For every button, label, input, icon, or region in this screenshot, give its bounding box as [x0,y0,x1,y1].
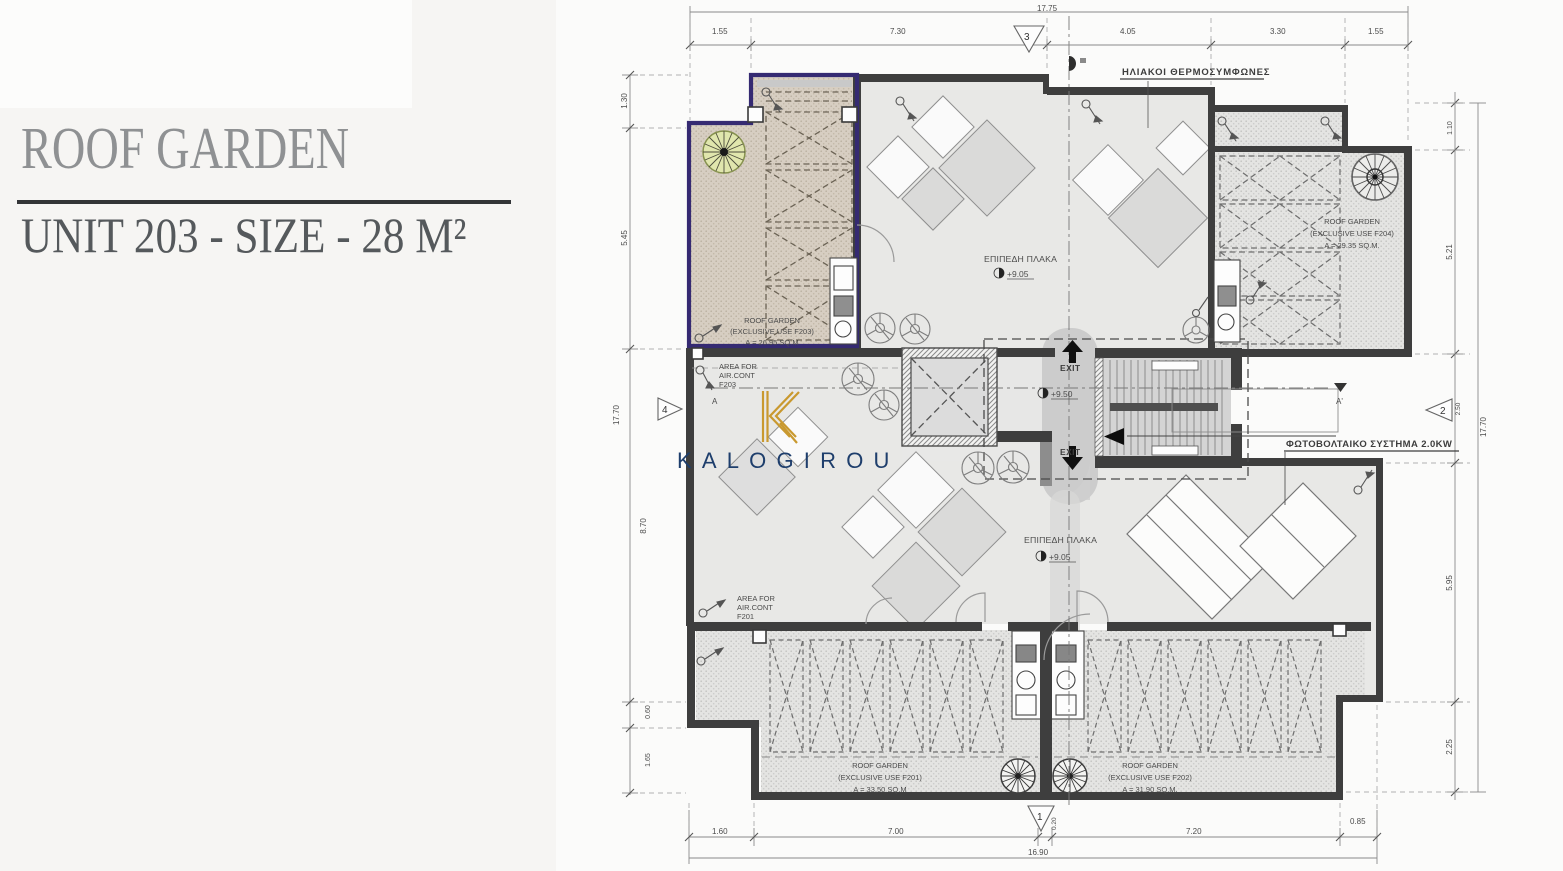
svg-text:7.20: 7.20 [1186,827,1202,836]
svg-text:ROOF GARDEN: ROOF GARDEN [1122,761,1178,770]
svg-text:ROOF GARDEN: ROOF GARDEN [744,316,800,325]
svg-text:F201: F201 [737,612,754,621]
svg-text:AREA FOR: AREA FOR [737,594,776,603]
svg-text:3.30: 3.30 [1270,27,1286,36]
svg-text:ROOF GARDEN: ROOF GARDEN [1324,217,1380,226]
svg-text:1.55: 1.55 [1368,27,1384,36]
svg-text:+9.05: +9.05 [1049,552,1071,562]
svg-text:7.00: 7.00 [888,827,904,836]
svg-text:5.21: 5.21 [1445,244,1454,260]
svg-text:ΦΩΤΟΒΟΛΤΑΙΚΟ ΣΥΣΤΗΜΑ 2.0KW: ΦΩΤΟΒΟΛΤΑΙΚΟ ΣΥΣΤΗΜΑ 2.0KW [1286,439,1452,450]
svg-text:4: 4 [662,405,668,416]
svg-text:17.70: 17.70 [612,404,621,425]
svg-text:1: 1 [1037,812,1043,823]
svg-text:+9.05: +9.05 [1007,269,1029,279]
svg-text:ΕΠΙΠΕΔΗ ΠΛΑΚΑ: ΕΠΙΠΕΔΗ ΠΛΑΚΑ [984,254,1057,264]
svg-text:0.60: 0.60 [645,705,652,719]
svg-text:1.55: 1.55 [712,27,728,36]
svg-text:ΗΛΙΑΚΟΙ ΘΕΡΜΟΣΥΜΦΩΝΕΣ: ΗΛΙΑΚΟΙ ΘΕΡΜΟΣΥΜΦΩΝΕΣ [1122,67,1270,78]
svg-text:1.60: 1.60 [712,827,728,836]
svg-text:ΕΠΙΠΕΔΗ ΠΛΑΚΑ: ΕΠΙΠΕΔΗ ΠΛΑΚΑ [1024,535,1097,545]
svg-text:4.05: 4.05 [1120,27,1136,36]
svg-text:16.90: 16.90 [1028,848,1049,857]
svg-text:(EXCLUSIVE USE F203): (EXCLUSIVE USE F203) [730,327,814,336]
svg-text:EXIT: EXIT [1060,447,1081,457]
svg-text:(EXCLUSIVE USE F202): (EXCLUSIVE USE F202) [1108,773,1192,782]
svg-text:1.10: 1.10 [1447,121,1454,135]
svg-text:A = 29.35 SQ.M.: A = 29.35 SQ.M. [1324,241,1379,250]
svg-text:5.45: 5.45 [620,230,629,246]
svg-text:17.75: 17.75 [1037,4,1058,13]
svg-text:AIR.CONT: AIR.CONT [737,603,773,612]
svg-text:A = 26.95 SQ.M: A = 26.95 SQ.M [745,338,798,347]
svg-text:1.65: 1.65 [645,753,652,767]
svg-text:ROOF GARDEN: ROOF GARDEN [852,761,908,770]
svg-text:0.20: 0.20 [1051,817,1058,830]
svg-text:2: 2 [1440,406,1446,417]
svg-text:F203: F203 [719,380,736,389]
svg-text:+9.50: +9.50 [1051,389,1073,399]
svg-text:1.30: 1.30 [620,93,629,109]
svg-text:2.25: 2.25 [1445,739,1454,755]
svg-text:AIR.CONT: AIR.CONT [719,371,755,380]
svg-text:2.50: 2.50 [1455,402,1462,415]
svg-text:(EXCLUSIVE USE F201): (EXCLUSIVE USE F201) [838,773,922,782]
svg-text:8.70: 8.70 [639,518,648,534]
svg-text:AREA FOR: AREA FOR [719,362,758,371]
svg-text:A: A [712,397,718,406]
svg-text:KALOGIROU: KALOGIROU [677,448,900,473]
svg-text:A = 33.50 SQ.M: A = 33.50 SQ.M [853,785,906,794]
svg-text:EXIT: EXIT [1060,363,1081,373]
svg-text:0.85: 0.85 [1350,817,1366,826]
svg-text:A': A' [1336,397,1343,406]
svg-text:3: 3 [1024,32,1030,43]
svg-text:(EXCLUSIVE USE F204): (EXCLUSIVE USE F204) [1310,229,1394,238]
svg-text:5.95: 5.95 [1445,575,1454,591]
svg-text:7.30: 7.30 [890,27,906,36]
svg-text:17.70: 17.70 [1479,416,1488,437]
svg-text:A = 31.90 SQ.M.: A = 31.90 SQ.M. [1122,785,1177,794]
